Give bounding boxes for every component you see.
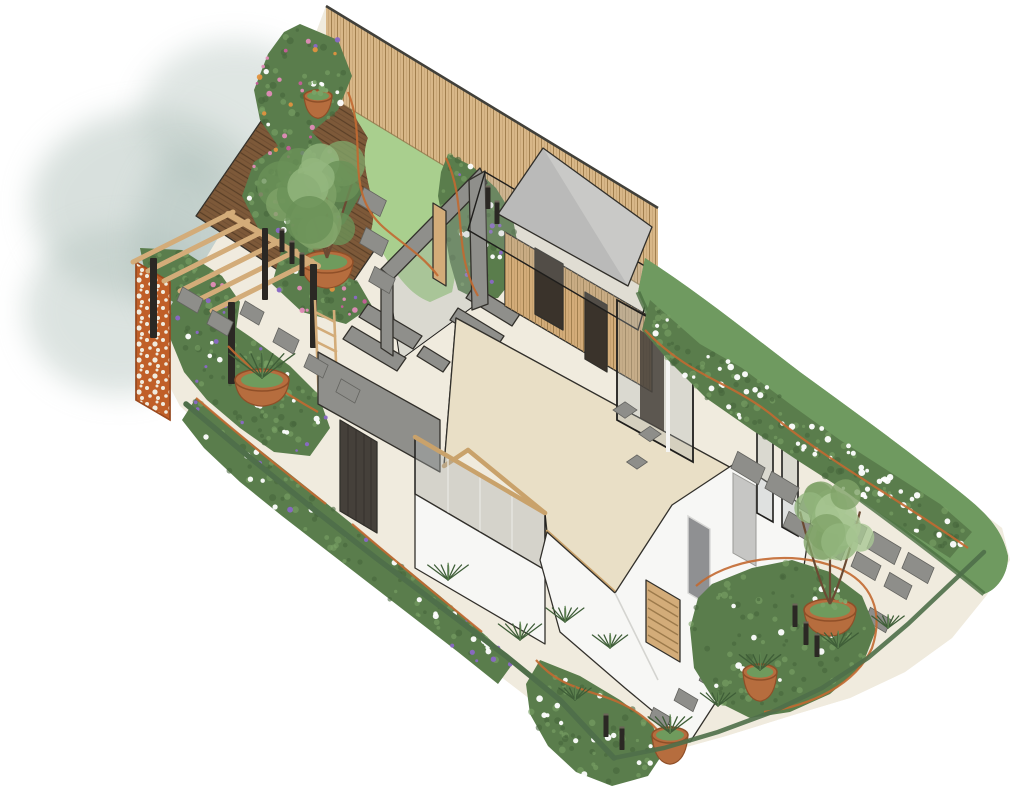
foliage-dot (727, 652, 733, 658)
flower-dot (744, 389, 750, 395)
flower-dot (490, 254, 495, 259)
foliage-dot (270, 82, 277, 89)
foliage-dot (785, 639, 789, 643)
foliage-dot (718, 593, 722, 597)
flower-dot (450, 644, 454, 648)
foliage-dot (221, 375, 225, 379)
foliage-dot (653, 320, 657, 324)
foliage-dot (558, 741, 563, 746)
bollard-light (495, 201, 500, 225)
flower-dot (865, 469, 869, 473)
foliage-dot (327, 116, 331, 120)
foliage-dot (282, 280, 288, 286)
foliage-dot (613, 767, 620, 774)
flower-dot (342, 286, 346, 290)
foliage-dot (461, 176, 467, 182)
foliage-dot (342, 559, 346, 563)
bollard-cap (486, 186, 491, 188)
foliage-dot (261, 410, 265, 414)
flower-dot (910, 497, 915, 502)
foliage-dot (782, 657, 788, 663)
flower-dot (752, 387, 758, 393)
flower-dot (649, 744, 653, 748)
foliage-dot (667, 314, 671, 318)
foliage-dot (630, 747, 635, 752)
foliage-dot (248, 464, 252, 468)
bollard-cap (620, 727, 625, 729)
foliage-dot (642, 765, 648, 771)
foliage-dot (324, 535, 329, 540)
flower-dot (581, 771, 587, 777)
foliage-dot (339, 87, 344, 92)
foliage-dot (303, 527, 307, 531)
flower-dot (310, 125, 315, 130)
foliage-dot (236, 365, 239, 368)
grass-blade (718, 691, 719, 706)
bollard-cap (290, 241, 295, 243)
foliage-dot (354, 280, 358, 284)
foliage-dot (280, 93, 285, 98)
foliage-dot (272, 426, 277, 431)
bollard-light (290, 241, 295, 265)
pot-flower-dot (839, 598, 844, 603)
flower-dot (491, 657, 496, 662)
flower-dot (778, 629, 784, 635)
foliage-dot (791, 686, 797, 692)
flower-dot (324, 416, 328, 420)
flower-dot (204, 365, 207, 368)
bollard-post (793, 605, 798, 627)
flower-dot (470, 650, 475, 655)
foliage-dot (209, 375, 213, 379)
bollard-cap (300, 253, 305, 255)
flower-dot (417, 597, 422, 602)
flower-dot (819, 426, 824, 431)
flower-dot (261, 479, 265, 483)
foliage-dot (306, 120, 311, 125)
flower-dot (211, 282, 216, 287)
flower-dot (861, 492, 867, 498)
flower-dot (536, 695, 543, 702)
tree-foliage-blob (846, 523, 874, 551)
foliage-dot (259, 106, 265, 112)
flower-dot (865, 487, 870, 492)
foliage-dot (288, 109, 295, 116)
foliage-dot (689, 621, 694, 626)
foliage-dot (732, 642, 736, 646)
bollard-cap (495, 201, 500, 203)
foliage-dot (283, 129, 287, 133)
flower-dot (498, 255, 503, 260)
foliage-dot (258, 428, 262, 432)
foliage-dot (455, 630, 462, 637)
flower-dot (914, 492, 920, 498)
bollard-cap (604, 714, 609, 716)
foliage-dot (249, 200, 254, 205)
flower-dot (559, 721, 563, 725)
foliage-dot (296, 386, 301, 391)
bollard-post (804, 623, 809, 645)
pot-flower-dot (312, 90, 317, 95)
foliage-dot (622, 714, 629, 721)
foliage-dot (251, 416, 257, 422)
foliage-dot (224, 295, 229, 300)
flower-dot (915, 529, 919, 533)
flower-dot (206, 298, 211, 303)
flower-dot (726, 359, 731, 364)
foliage-dot (257, 356, 261, 360)
flower-dot (352, 307, 358, 313)
foliage-dot (827, 466, 834, 473)
foliage-dot (781, 575, 785, 579)
foliage-dot (671, 342, 674, 345)
foliage-dot (266, 436, 271, 441)
foliage-dot (416, 613, 420, 617)
flower-dot (757, 392, 763, 398)
foliage-dot (388, 597, 393, 602)
flower-dot (282, 133, 287, 138)
flower-dot (714, 684, 718, 688)
foliage-dot (719, 390, 725, 396)
foliage-dot (757, 379, 761, 383)
pot-flower-dot (318, 91, 323, 96)
flower-dot (809, 424, 815, 430)
flower-dot (653, 330, 659, 336)
foliage-dot (747, 613, 753, 619)
bollard-light (620, 727, 625, 751)
foliage-dot (562, 736, 568, 742)
flower-dot (306, 309, 309, 312)
flower-dot (287, 507, 293, 513)
foliage-dot (816, 439, 820, 443)
foliage-dot (813, 592, 817, 596)
foliage-dot (953, 522, 959, 528)
foliage-dot (773, 698, 777, 702)
foliage-dot (960, 529, 964, 533)
pot-soil (810, 602, 851, 617)
foliage-dot (442, 189, 446, 193)
foliage-dot (667, 343, 671, 347)
foliage-dot (287, 37, 294, 44)
flower-dot (203, 434, 208, 439)
flower-dot (731, 604, 736, 609)
flower-dot (223, 311, 226, 314)
foliage-dot (282, 54, 287, 59)
flower-dot (433, 611, 438, 616)
flower-dot (950, 541, 957, 548)
foliage-dot (209, 349, 213, 353)
flower-dot (266, 56, 269, 59)
foliage-dot (227, 468, 233, 474)
flower-dot (277, 78, 281, 82)
flower-dot (637, 760, 642, 765)
bollard-post (300, 254, 305, 276)
flower-dot (362, 299, 366, 303)
foliage-dot (528, 709, 534, 715)
foliage-dot (271, 129, 278, 136)
bollard-post (604, 715, 609, 737)
foliage-dot (203, 308, 210, 315)
foliage-dot (724, 581, 731, 588)
flower-dot (846, 444, 851, 449)
foliage-dot (394, 590, 397, 593)
foliage-dot (664, 355, 670, 361)
foliage-dot (722, 680, 729, 687)
flower-dot (309, 136, 312, 139)
foliage-dot (307, 396, 311, 400)
foliage-dot (822, 473, 829, 480)
foliage-dot (834, 657, 839, 662)
foliage-dot (782, 560, 789, 567)
flower-dot (210, 341, 214, 345)
grey-window-upper (733, 473, 756, 566)
foliage-dot (664, 330, 671, 337)
foliage-dot (741, 574, 747, 580)
foliage-dot (802, 645, 808, 651)
foliage-dot (265, 84, 270, 89)
foliage-dot (281, 497, 285, 501)
foliage-dot (693, 383, 698, 388)
flower-dot (726, 404, 731, 409)
foliage-dot (613, 741, 620, 748)
bollard-post (486, 187, 491, 209)
foliage-dot (721, 592, 728, 599)
flower-dot (214, 339, 219, 344)
foliage-dot (773, 604, 778, 609)
foliage-dot (183, 345, 189, 351)
foliage-dot (545, 722, 550, 727)
foliage-dot (295, 436, 301, 442)
foliage-dot (263, 413, 268, 418)
foliage-dot (233, 410, 238, 415)
bollard-post (280, 230, 285, 252)
foliage-dot (704, 646, 710, 652)
foliage-dot (801, 677, 806, 682)
bollard-cap (793, 604, 798, 606)
flower-dot (666, 318, 669, 321)
pot-flower-dot (324, 88, 329, 93)
foliage-dot (269, 494, 276, 501)
foliage-dot (636, 773, 641, 778)
foliage-dot (789, 669, 795, 675)
foliage-dot (694, 605, 699, 610)
flower-dot (573, 738, 578, 743)
foliage-dot (903, 523, 907, 527)
foliage-dot (299, 409, 303, 413)
foliage-dot (347, 558, 351, 562)
foliage-dot (212, 399, 218, 405)
flower-dot (274, 148, 278, 152)
flower-dot (825, 436, 832, 443)
foliage-dot (863, 627, 866, 630)
foliage-dot (685, 349, 691, 355)
flower-dot (194, 400, 198, 404)
flower-dot (333, 52, 336, 55)
foliage-dot (670, 359, 677, 366)
flower-dot (299, 81, 303, 85)
flower-dot (295, 449, 298, 452)
foliage-dot (296, 28, 299, 31)
foliage-dot (757, 419, 762, 424)
foliage-dot (589, 720, 596, 727)
flower-dot (196, 331, 199, 334)
foliage-dot (611, 725, 617, 731)
flower-dot (282, 430, 286, 434)
foliage-dot (741, 400, 748, 407)
flower-dot (734, 374, 740, 380)
foliage-dot (606, 779, 612, 785)
foliage-dot (258, 97, 265, 104)
foliage-dot (280, 99, 286, 105)
foliage-dot (757, 634, 761, 638)
foliage-dot (337, 73, 341, 77)
flower-dot (316, 420, 320, 424)
foliage-dot (325, 70, 330, 75)
foliage-dot (822, 668, 827, 673)
flower-dot (300, 308, 305, 313)
foliage-dot (858, 653, 862, 657)
foliage-dot (261, 119, 265, 123)
foliage-dot (889, 512, 893, 516)
foliage-dot (710, 351, 716, 357)
foliage-dot (793, 662, 797, 666)
bollard-light (280, 229, 285, 253)
flower-dot (546, 713, 550, 717)
flower-dot (468, 164, 474, 170)
foliage-dot (262, 439, 268, 445)
flower-dot (195, 380, 198, 383)
flower-dot (268, 151, 272, 155)
foliage-dot (941, 507, 948, 514)
foliage-dot (940, 544, 945, 549)
foliage-dot (203, 368, 206, 371)
bollard-post (495, 202, 500, 224)
foliage-dot (657, 310, 661, 314)
foliage-dot (729, 596, 732, 599)
foliage-dot (797, 687, 803, 693)
foliage-dot (713, 678, 718, 683)
flower-dot (648, 760, 653, 765)
foliage-dot (157, 253, 161, 257)
flower-dot (337, 100, 344, 107)
foliage-dot (791, 594, 795, 598)
flower-dot (297, 286, 302, 291)
foliage-dot (569, 746, 574, 751)
foliage-dot (677, 325, 681, 329)
flower-dot (305, 442, 309, 446)
foliage-dot (592, 752, 595, 755)
foliage-dot (287, 129, 293, 135)
foliage-dot (774, 436, 778, 440)
foliage-dot (730, 411, 733, 414)
foliage-dot (876, 499, 880, 503)
foliage-dot (559, 731, 563, 735)
flower-dot (335, 37, 340, 42)
flower-dot (812, 452, 817, 457)
foliage-dot (841, 443, 847, 449)
flower-dot (284, 49, 288, 53)
flower-dot (257, 74, 263, 80)
grass-blade (575, 686, 576, 700)
flower-dot (796, 442, 800, 446)
foliage-dot (284, 493, 290, 499)
foliage-dot (184, 277, 188, 281)
foliage-dot (778, 438, 784, 444)
flower-dot (555, 703, 561, 709)
foliage-dot (278, 414, 284, 420)
foliage-dot (836, 468, 843, 475)
foliage-dot (733, 382, 738, 387)
flower-dot (945, 518, 951, 524)
grass-blade (888, 614, 889, 628)
flower-dot (348, 313, 351, 316)
flower-dot (208, 354, 213, 359)
foliage-dot (740, 615, 745, 620)
flower-dot (682, 373, 688, 379)
foliage-dot (571, 733, 575, 737)
foliage-dot (719, 687, 723, 691)
foliage-dot (251, 340, 257, 346)
foliage-dot (334, 536, 341, 543)
flower-dot (262, 111, 266, 115)
flower-dot (341, 305, 344, 308)
flower-dot (252, 165, 255, 168)
foliage-dot (320, 44, 327, 51)
flower-dot (471, 636, 477, 642)
foliage-dot (693, 627, 697, 631)
foliage-dot (552, 729, 556, 733)
flower-dot (175, 316, 180, 321)
flower-dot (899, 489, 904, 494)
foliage-dot (777, 394, 781, 398)
foliage-dot (754, 611, 759, 616)
flower-dot (751, 635, 757, 641)
flower-dot (343, 298, 346, 301)
grass-blade (565, 606, 566, 622)
foliage-dot (286, 260, 289, 263)
foliage-dot (919, 524, 926, 531)
foliage-dot (199, 381, 204, 386)
foliage-dot (335, 312, 339, 316)
flower-dot (273, 504, 278, 509)
foliage-dot (459, 163, 463, 167)
foliage-dot (929, 539, 936, 546)
flower-dot (247, 196, 252, 201)
foliage-dot (593, 765, 598, 770)
flower-dot (655, 324, 659, 328)
foliage-dot (252, 211, 259, 218)
foliage-dot (727, 587, 730, 590)
flower-dot (241, 421, 244, 424)
flower-dot (692, 375, 695, 378)
foliage-dot (805, 433, 810, 438)
foliage-dot (560, 726, 565, 731)
foliage-dot (883, 487, 886, 490)
bollard-cap (815, 634, 820, 636)
foliage-dot (280, 404, 285, 409)
flower-dot (718, 367, 722, 371)
flower-dot (801, 444, 806, 449)
flower-dot (256, 82, 259, 85)
foliage-dot (761, 640, 765, 644)
foliage-dot (295, 112, 300, 117)
foliage-dot (744, 416, 750, 422)
tree-foliage-blob (286, 196, 334, 244)
foliage-dot (739, 688, 744, 693)
foliage-dot (347, 282, 351, 286)
foliage-dot (236, 414, 242, 420)
bollard-light (793, 604, 798, 628)
